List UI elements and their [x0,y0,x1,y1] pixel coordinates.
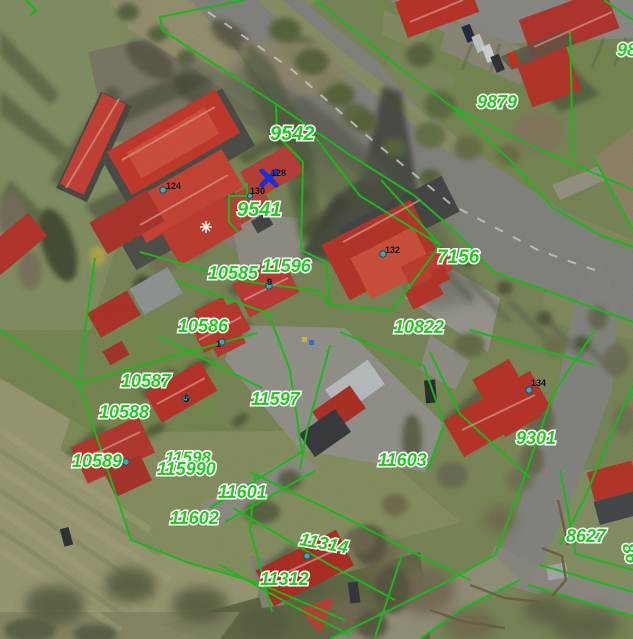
svg-text:10587: 10587 [121,371,172,391]
svg-text:98: 98 [617,40,633,60]
svg-text:115990: 115990 [157,459,216,479]
svg-text:124: 124 [166,181,181,191]
svg-text:7156: 7156 [437,247,480,268]
svg-text:10589: 10589 [72,451,122,471]
svg-text:11603: 11603 [378,450,427,470]
svg-text:9542: 9542 [270,123,315,145]
svg-text:132: 132 [385,245,400,255]
svg-text:10586: 10586 [178,316,229,336]
svg-text:9301: 9301 [516,428,556,448]
svg-text:10588: 10588 [99,402,149,422]
svg-text:10585: 10585 [208,263,259,283]
svg-text:11596: 11596 [262,256,312,276]
svg-text:11602: 11602 [170,508,219,528]
svg-text:10822: 10822 [394,317,444,337]
svg-text:128: 128 [271,168,286,178]
svg-text:1: 1 [216,339,221,349]
svg-text:9879: 9879 [477,92,517,112]
svg-text:8627: 8627 [566,526,607,546]
svg-text:11597: 11597 [251,389,301,409]
svg-text:130: 130 [250,186,265,196]
svg-text:9541: 9541 [237,199,282,221]
svg-text:134: 134 [531,378,546,388]
svg-text:9: 9 [267,277,272,287]
svg-text:5: 5 [184,394,189,404]
svg-text:11312: 11312 [260,569,309,589]
svg-text:11601: 11601 [218,482,267,502]
